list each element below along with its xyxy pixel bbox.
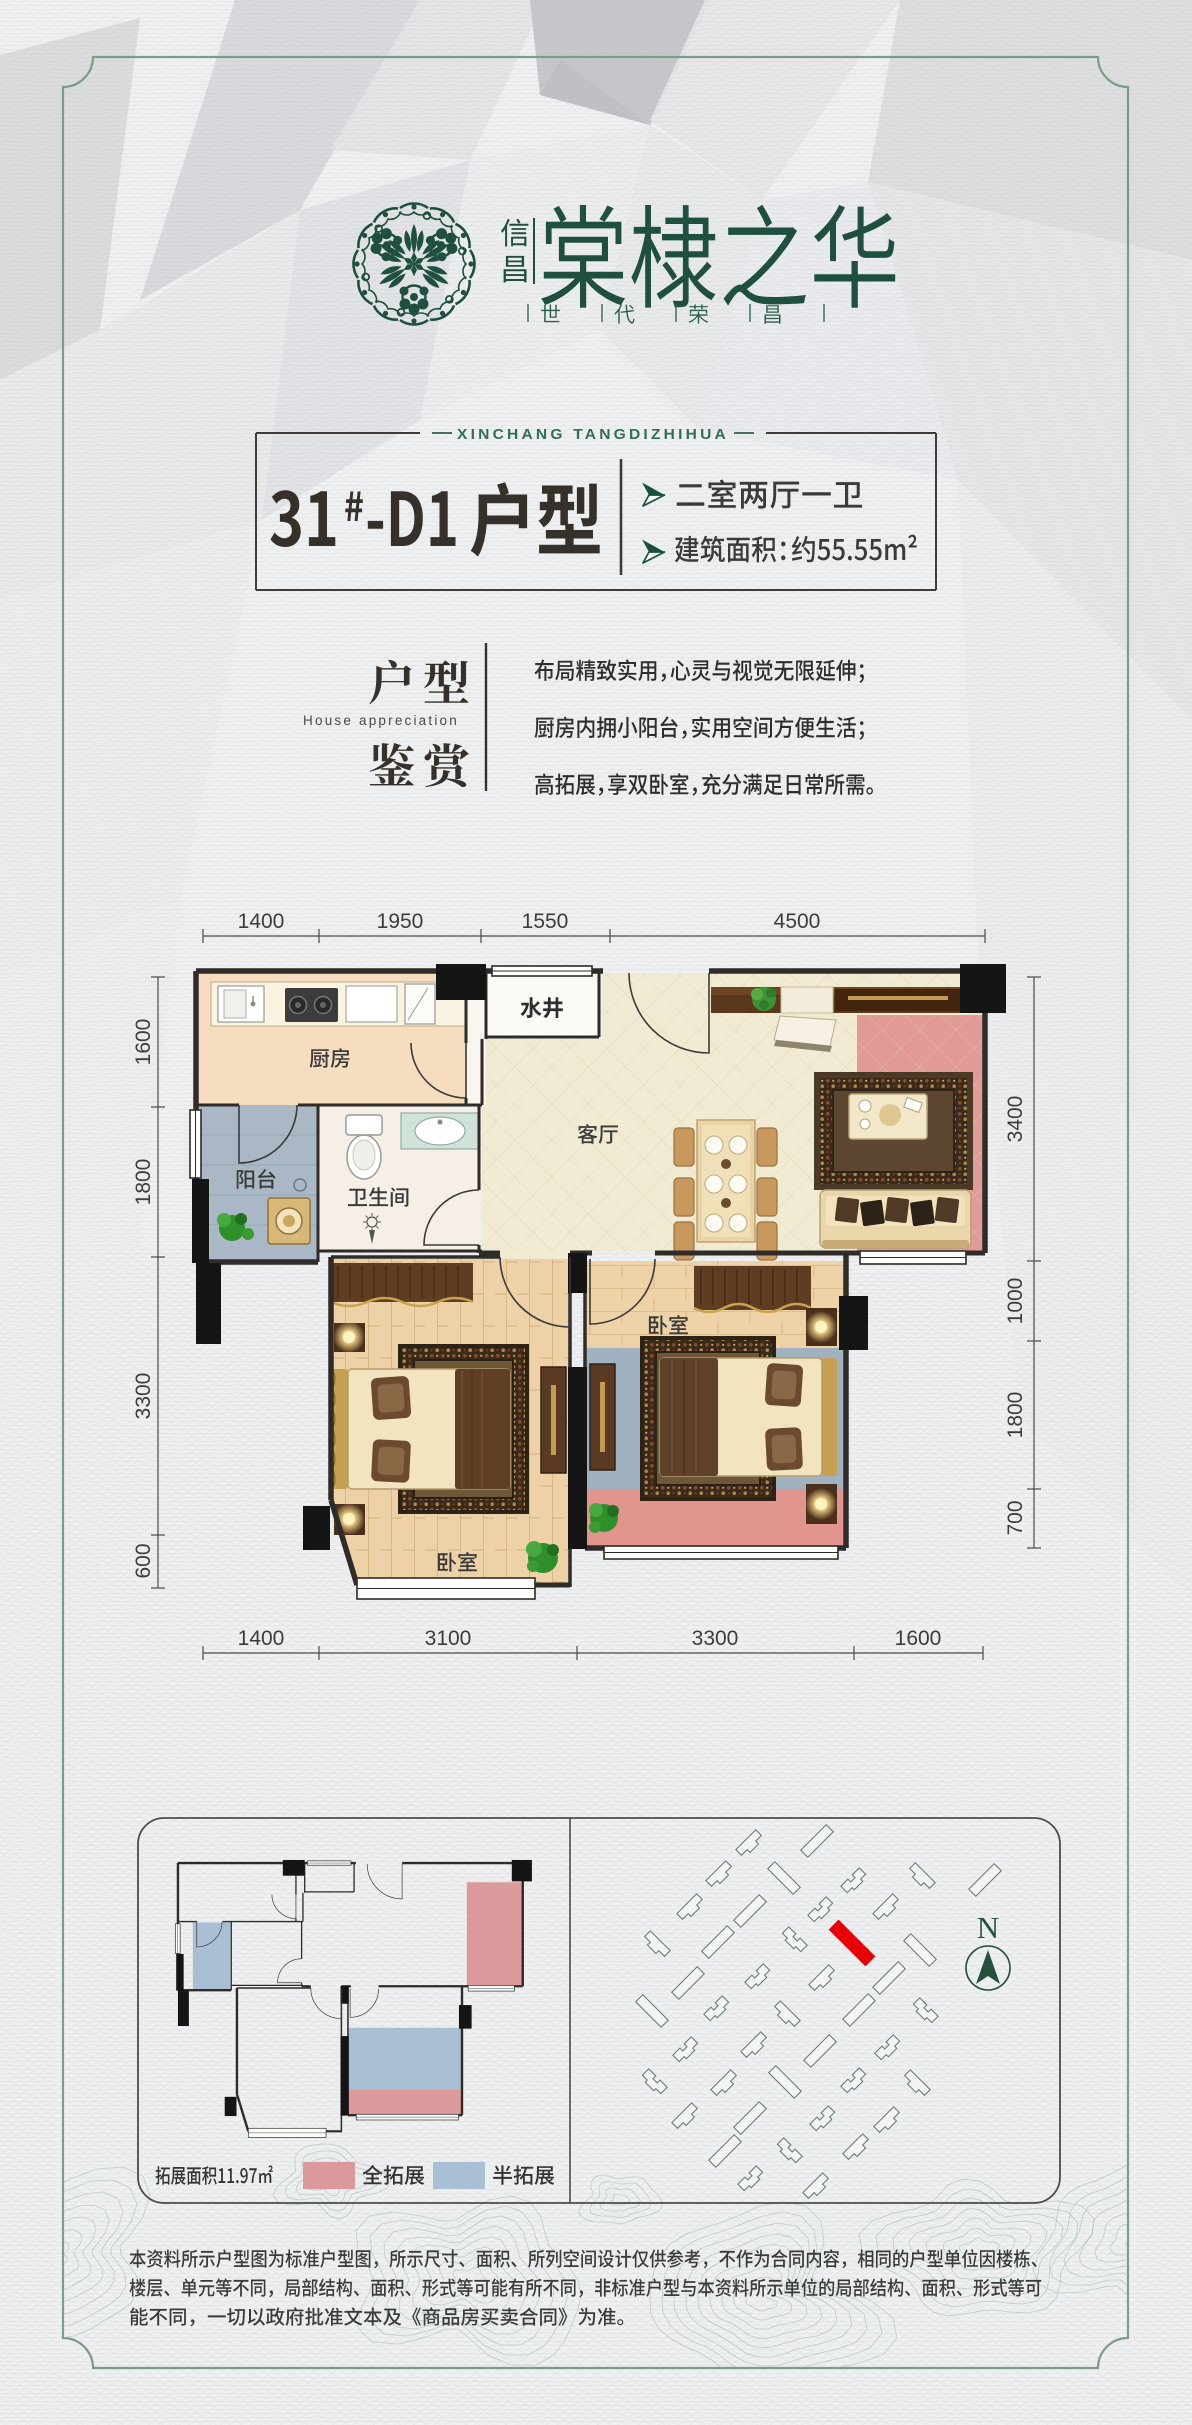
svg-text:3400: 3400 [1004, 1096, 1027, 1143]
svg-text:3300: 3300 [692, 1627, 739, 1650]
svg-text:700: 700 [1004, 1500, 1027, 1535]
svg-text:1800: 1800 [132, 1159, 155, 1206]
svg-text:1400: 1400 [238, 910, 285, 933]
svg-text:1000: 1000 [1004, 1278, 1027, 1325]
svg-text:1600: 1600 [132, 1019, 155, 1066]
svg-text:3100: 3100 [425, 1627, 472, 1650]
svg-text:1800: 1800 [1004, 1392, 1027, 1439]
svg-text:1400: 1400 [238, 1627, 285, 1650]
svg-text:1550: 1550 [522, 910, 569, 933]
svg-text:1600: 1600 [895, 1627, 942, 1650]
svg-text:XINCHANG TANGDIZHIHUA: XINCHANG TANGDIZHIHUA [457, 427, 729, 443]
svg-text:3300: 3300 [132, 1373, 155, 1420]
svg-text:1950: 1950 [377, 910, 424, 933]
svg-text:House appreciation: House appreciation [303, 713, 459, 728]
svg-text:600: 600 [132, 1543, 155, 1578]
svg-text:N: N [977, 1910, 999, 1945]
svg-text:4500: 4500 [774, 910, 821, 933]
